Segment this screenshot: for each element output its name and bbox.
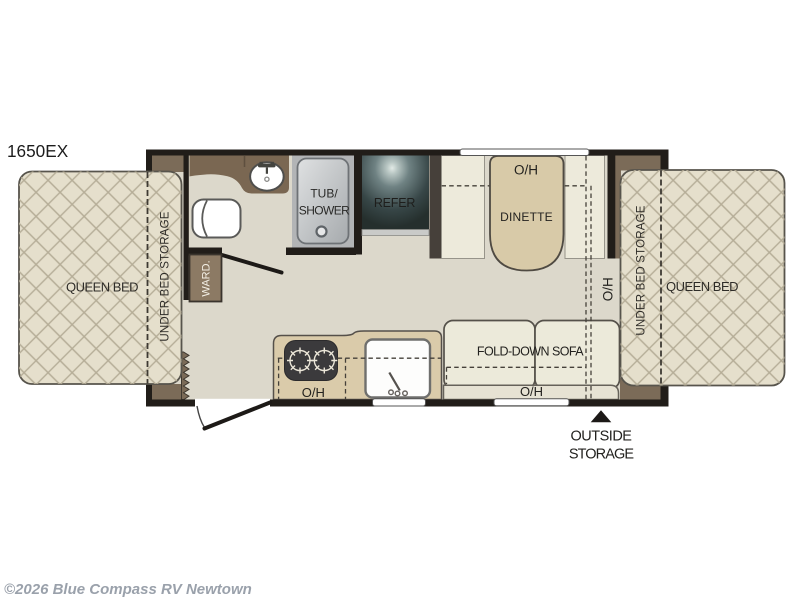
svg-text:UNDER BED STORAGE: UNDER BED STORAGE	[160, 211, 172, 341]
svg-text:TUB/: TUB/	[310, 187, 338, 201]
svg-text:DINETTE: DINETTE	[500, 210, 553, 224]
svg-text:OUTSIDE: OUTSIDE	[571, 429, 633, 445]
svg-text:WARD.: WARD.	[201, 260, 213, 296]
svg-text:O/H: O/H	[601, 277, 616, 301]
svg-text:O/H: O/H	[514, 163, 538, 178]
svg-text:QUEEN BED: QUEEN BED	[66, 280, 138, 295]
svg-text:UNDER BED STORAGE: UNDER BED STORAGE	[636, 205, 648, 335]
svg-text:O/H: O/H	[520, 384, 543, 399]
svg-text:1650EX: 1650EX	[7, 141, 69, 161]
svg-text:O/H: O/H	[302, 385, 325, 400]
svg-text:QUEEN BED: QUEEN BED	[666, 279, 738, 294]
svg-text:FOLD-DOWN SOFA: FOLD-DOWN SOFA	[477, 344, 584, 358]
svg-text:STORAGE: STORAGE	[569, 447, 635, 463]
svg-text:REFER: REFER	[374, 196, 416, 210]
svg-text:SHOWER: SHOWER	[299, 204, 350, 218]
svg-text:©2026 Blue Compass RV Newtown: ©2026 Blue Compass RV Newtown	[4, 581, 252, 598]
